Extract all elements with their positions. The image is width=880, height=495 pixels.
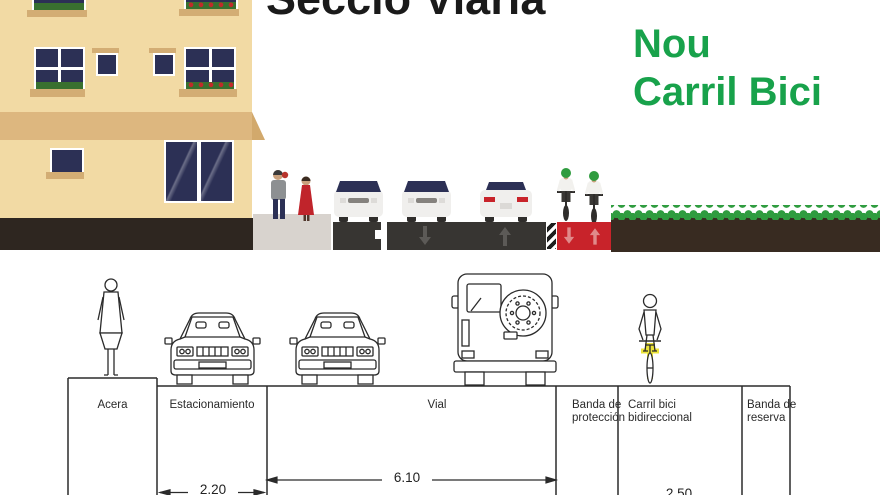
entrance-door bbox=[164, 140, 234, 203]
greenery-soil-strip bbox=[611, 217, 880, 252]
dimension-value-vial: 6.10 bbox=[382, 470, 432, 485]
traffic-arrow-down-icon bbox=[418, 226, 432, 246]
cyclist-figure bbox=[557, 168, 575, 221]
segment-label-acera: Acera bbox=[68, 399, 157, 412]
car-rear-illustration bbox=[480, 182, 532, 222]
traffic-arrow-up-icon bbox=[498, 226, 512, 246]
bike-arrow-up-icon bbox=[589, 227, 601, 245]
car-line-figure-vial bbox=[290, 313, 385, 384]
segment-label-line: protección bbox=[572, 412, 622, 425]
window-sill bbox=[46, 172, 84, 179]
segment-label-vial: Vial bbox=[267, 399, 607, 412]
window-sill bbox=[27, 10, 87, 17]
lane-separator-post bbox=[546, 222, 557, 250]
ground-soil-strip bbox=[0, 218, 253, 250]
window-sill bbox=[179, 9, 239, 16]
window-mid-left bbox=[34, 47, 85, 93]
road-asphalt bbox=[387, 222, 546, 250]
segment-label-banda-reserva: Banda de reserva bbox=[747, 399, 797, 425]
segment-label-line: bidireccional bbox=[628, 412, 708, 425]
cyclist-figure bbox=[585, 171, 603, 222]
dimension-value-carril-bici: 2.50 bbox=[654, 486, 704, 495]
pedestrians-illustration bbox=[262, 168, 318, 222]
cyclists-illustration bbox=[555, 167, 607, 222]
awning bbox=[0, 112, 252, 140]
awning-tip bbox=[252, 112, 265, 140]
parking-asphalt bbox=[333, 222, 381, 250]
grass-row bbox=[611, 205, 880, 220]
car-front-illustration bbox=[334, 181, 383, 222]
cross-section-svg bbox=[0, 260, 880, 495]
car-line-figure-parking bbox=[165, 313, 260, 384]
segment-label-banda-proteccion: Banda de protección bbox=[572, 399, 622, 425]
subtitle-nou: Nou bbox=[633, 24, 711, 64]
window-sill bbox=[179, 89, 237, 97]
cyclist-line-figure bbox=[639, 295, 661, 384]
man-figure bbox=[271, 170, 288, 219]
bike-lane-red bbox=[557, 222, 611, 250]
subtitle-carril-bici: Carril Bici bbox=[633, 72, 822, 112]
building-illustration bbox=[0, 0, 252, 218]
segment-label-line: Carril bici bbox=[628, 399, 708, 412]
woman-line-figure bbox=[98, 279, 124, 375]
window-mid-right bbox=[184, 47, 236, 93]
bike-arrow-down-icon bbox=[563, 227, 575, 245]
segment-label-estacionamiento: Estacionamiento bbox=[157, 399, 267, 412]
parking-marking bbox=[375, 230, 381, 239]
suv-line-figure bbox=[452, 274, 558, 385]
segment-label-line: Banda de bbox=[747, 399, 797, 412]
segment-label-carril-bici: Carril bici bidireccional bbox=[628, 399, 708, 425]
main-title: Secció Viària bbox=[266, 0, 545, 25]
car-front-illustration bbox=[402, 181, 451, 222]
dimension-value-estacionamiento: 2.20 bbox=[188, 482, 238, 495]
page-root: Secció Viària Nou Carril Bici bbox=[0, 0, 880, 495]
woman-figure bbox=[298, 177, 314, 222]
window-small-1 bbox=[96, 53, 118, 76]
segment-label-line: Banda de bbox=[572, 399, 622, 412]
window-sill bbox=[30, 89, 85, 97]
segment-label-line: reserva bbox=[747, 412, 797, 425]
window-small-2 bbox=[153, 53, 175, 76]
